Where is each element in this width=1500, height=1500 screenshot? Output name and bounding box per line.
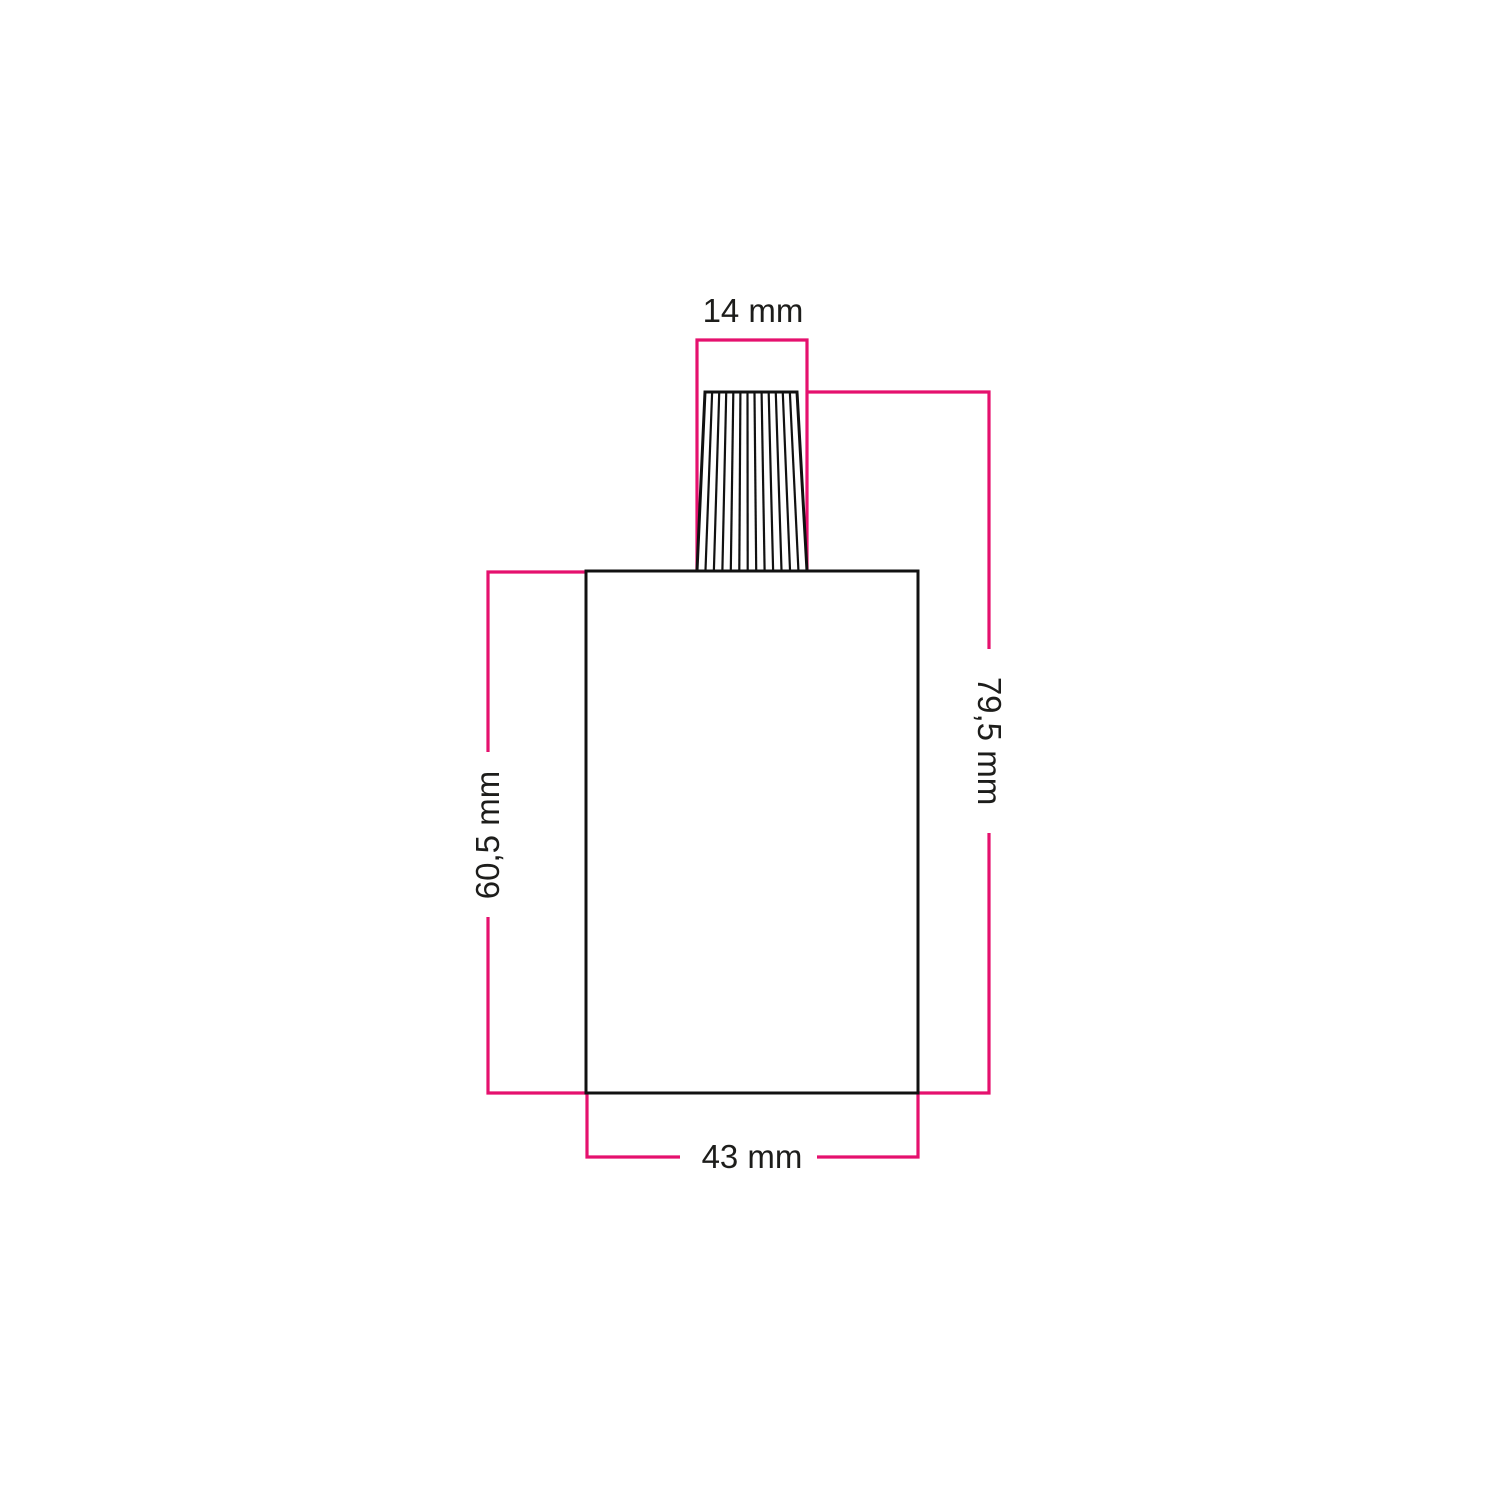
dim-body-width-label: 43 mm [702, 1138, 803, 1175]
dim-body-height-label: 60,5 mm [469, 771, 506, 899]
socket-body [586, 571, 918, 1093]
dim-top-width-label: 14 mm [703, 292, 804, 329]
dim-total-height-label: 79,5 mm [971, 677, 1008, 805]
dimension-drawing: 14 mm 79,5 mm 60,5 mm 43 mm [0, 0, 1500, 1500]
